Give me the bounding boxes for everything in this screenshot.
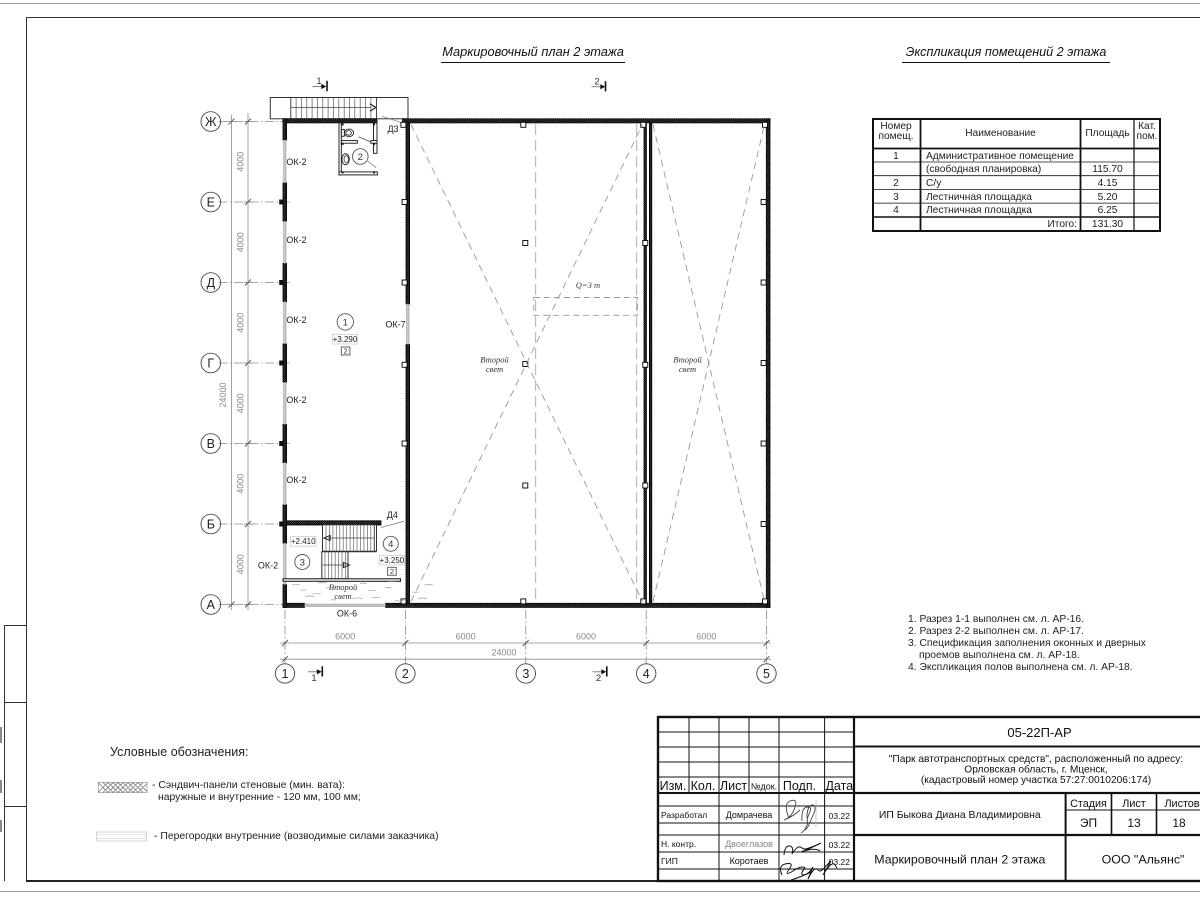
svg-text:ОК-2: ОК-2 — [286, 157, 306, 167]
svg-text:3: 3 — [300, 557, 305, 568]
svg-text:2: 2 — [596, 673, 601, 684]
svg-text:Г: Г — [207, 356, 214, 370]
svg-text:Второй: Второй — [480, 355, 509, 365]
svg-text:4000: 4000 — [236, 393, 246, 413]
svg-text:ОК-2: ОК-2 — [286, 315, 306, 325]
svg-text:4: 4 — [643, 667, 650, 681]
svg-text:ОК-7: ОК-7 — [385, 319, 405, 329]
svg-text:6000: 6000 — [576, 632, 596, 642]
svg-text:+3.290: +3.290 — [333, 335, 358, 344]
svg-text:ОК-2: ОК-2 — [286, 395, 306, 405]
svg-text:свет: свет — [486, 364, 503, 374]
svg-text:4000: 4000 — [236, 554, 246, 574]
svg-text:Б: Б — [207, 517, 215, 531]
svg-text:1: 1 — [282, 667, 289, 681]
svg-text:4000: 4000 — [236, 474, 246, 494]
svg-text:5: 5 — [763, 667, 770, 681]
svg-text:Д4: Д4 — [387, 510, 398, 520]
svg-text:В: В — [207, 437, 215, 451]
svg-text:24000: 24000 — [491, 648, 516, 658]
svg-text:1: 1 — [343, 317, 348, 328]
svg-text:Д3: Д3 — [387, 124, 398, 134]
svg-text:3: 3 — [522, 667, 529, 681]
svg-text:1: 1 — [311, 673, 316, 684]
svg-text:4: 4 — [388, 539, 393, 550]
svg-text:6000: 6000 — [696, 632, 716, 642]
svg-text:4000: 4000 — [236, 232, 246, 252]
svg-text:свет: свет — [679, 364, 696, 374]
svg-text:А: А — [207, 598, 216, 612]
svg-text:Д: Д — [207, 276, 216, 290]
svg-text:24000: 24000 — [218, 382, 228, 407]
svg-text:+2.410: +2.410 — [291, 537, 316, 546]
svg-text:1: 1 — [316, 76, 321, 87]
svg-text:ОК-6: ОК-6 — [337, 609, 357, 619]
svg-text:2: 2 — [390, 567, 394, 576]
svg-text:4000: 4000 — [236, 152, 246, 172]
svg-text:4000: 4000 — [236, 313, 246, 333]
svg-text:ОК-2: ОК-2 — [286, 475, 306, 485]
svg-text:2: 2 — [594, 76, 599, 87]
svg-text:2: 2 — [358, 152, 363, 163]
svg-text:2: 2 — [344, 347, 348, 356]
svg-text:6000: 6000 — [456, 632, 476, 642]
svg-text:2: 2 — [402, 667, 409, 681]
svg-text:6000: 6000 — [335, 632, 355, 642]
svg-text:Второй: Второй — [673, 355, 702, 365]
svg-text:ОК-2: ОК-2 — [258, 561, 278, 571]
svg-text:Ж: Ж — [205, 115, 217, 129]
svg-text:+3.250: +3.250 — [380, 556, 405, 565]
svg-text:ОК-2: ОК-2 — [286, 235, 306, 245]
svg-text:Q=3 m: Q=3 m — [576, 280, 600, 290]
svg-text:свет: свет — [334, 591, 351, 601]
svg-text:Е: Е — [207, 195, 215, 209]
